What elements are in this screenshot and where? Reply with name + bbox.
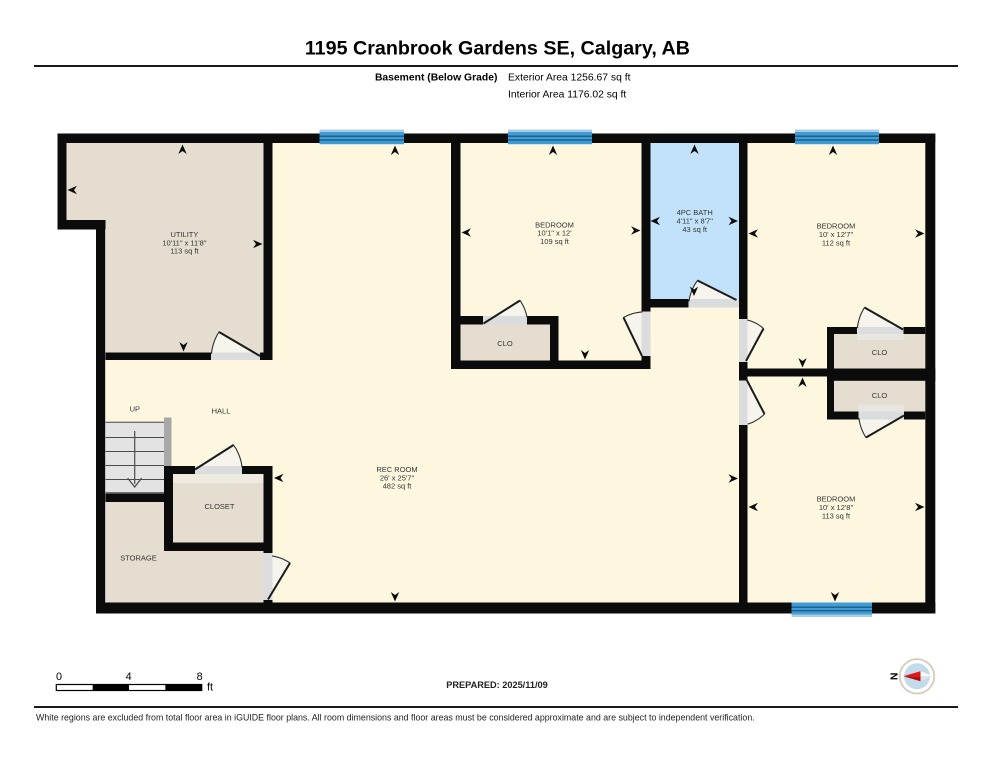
svg-text:UP: UP	[130, 404, 140, 413]
svg-text:43 sq ft: 43 sq ft	[682, 225, 708, 234]
svg-text:White regions are excluded fro: White regions are excluded from total fl…	[36, 713, 755, 723]
svg-text:8: 8	[197, 671, 203, 683]
svg-text:N: N	[889, 673, 901, 681]
svg-text:482 sq ft: 482 sq ft	[383, 482, 413, 491]
svg-text:STORAGE: STORAGE	[120, 554, 157, 563]
svg-text:CLO: CLO	[497, 339, 513, 348]
svg-text:0: 0	[56, 671, 62, 683]
svg-text:113 sq ft: 113 sq ft	[822, 511, 851, 520]
svg-text:112 sq ft: 112 sq ft	[822, 238, 851, 247]
svg-text:CLO: CLO	[872, 348, 888, 357]
svg-text:Exterior Area 1256.67 sq ft: Exterior Area 1256.67 sq ft	[508, 73, 631, 84]
svg-text:CLOSET: CLOSET	[204, 502, 234, 511]
svg-text:4: 4	[126, 671, 132, 683]
svg-text:Interior Area 1176.02 sq ft: Interior Area 1176.02 sq ft	[508, 90, 626, 101]
svg-text:Basement (Below Grade): Basement (Below Grade)	[375, 73, 497, 84]
svg-text:113 sq ft: 113 sq ft	[170, 247, 199, 256]
svg-text:CLO: CLO	[872, 391, 888, 400]
svg-text:1195 Cranbrook Gardens SE, Cal: 1195 Cranbrook Gardens SE, Calgary, AB	[305, 37, 690, 59]
svg-text:ft: ft	[207, 682, 213, 694]
svg-text:109 sq ft: 109 sq ft	[540, 237, 570, 246]
svg-text:PREPARED: 2025/11/09: PREPARED: 2025/11/09	[446, 680, 547, 690]
svg-text:HALL: HALL	[212, 406, 231, 415]
